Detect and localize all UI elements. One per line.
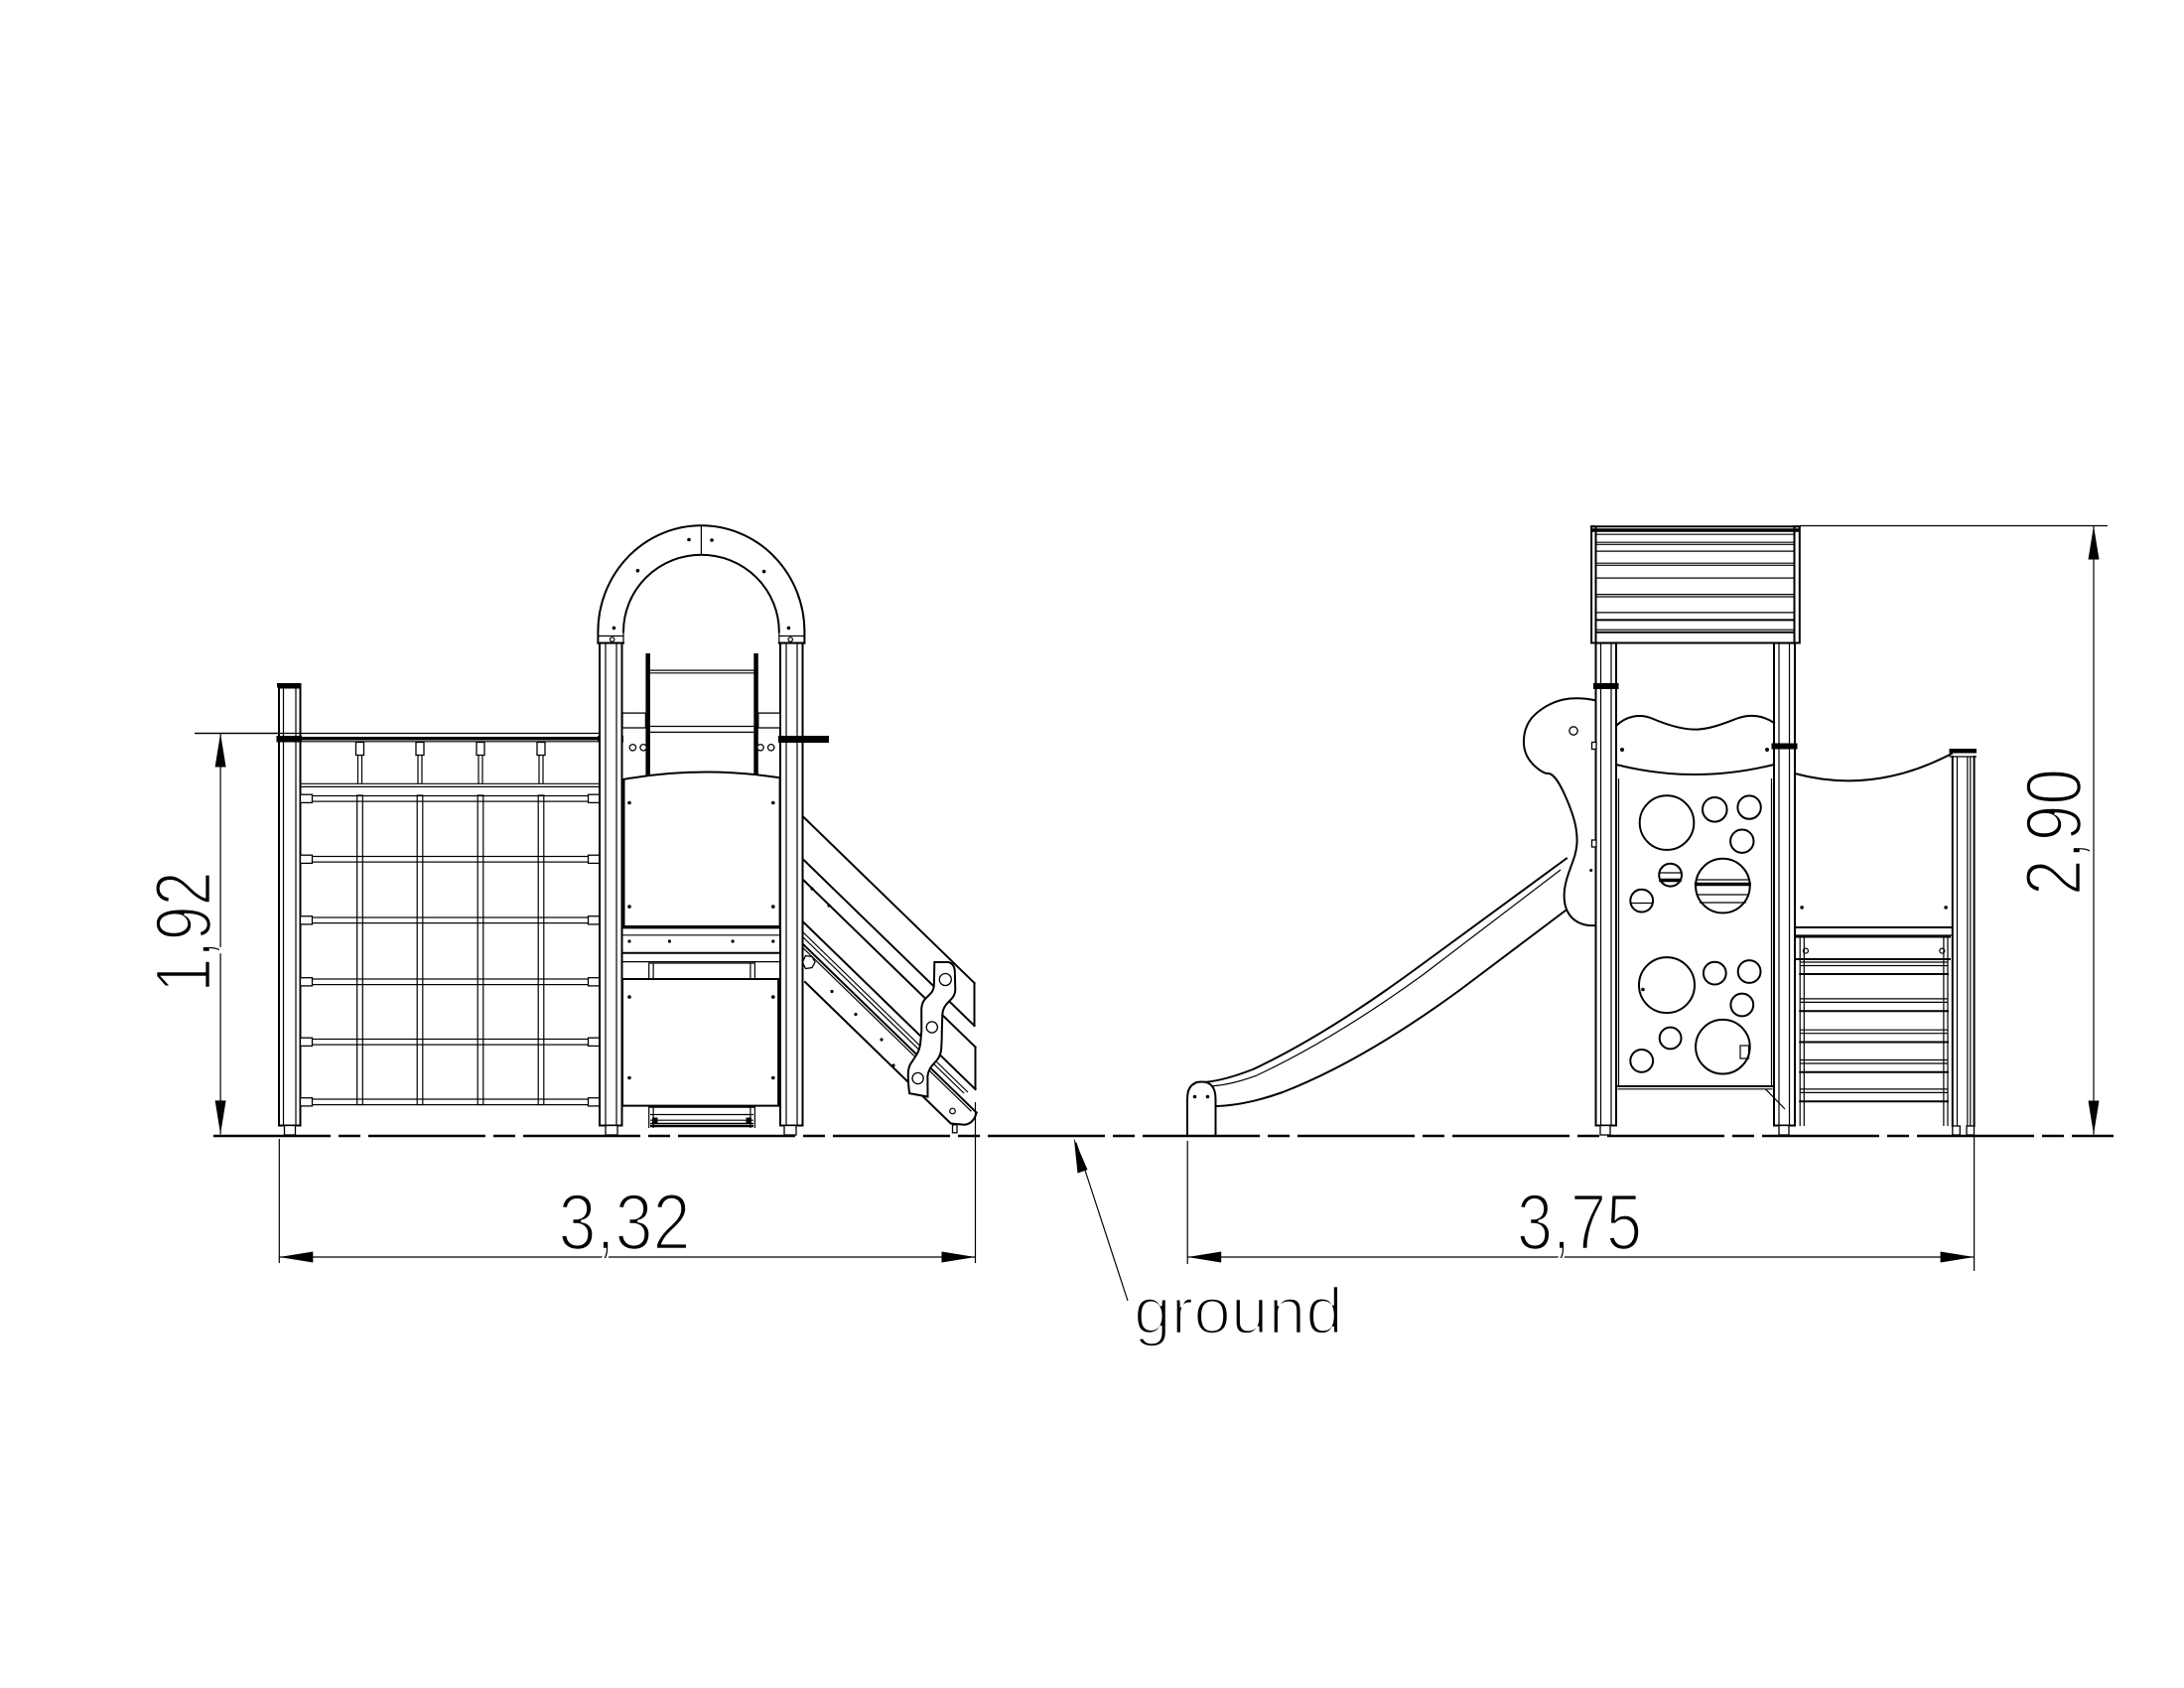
svg-text:3,32: 3,32 (559, 1178, 691, 1266)
svg-text:1,92: 1,92 (139, 872, 227, 993)
svg-text:ground: ground (1134, 1274, 1343, 1347)
svg-text:2,90: 2,90 (2009, 769, 2098, 896)
svg-text:3,75: 3,75 (1517, 1178, 1642, 1266)
